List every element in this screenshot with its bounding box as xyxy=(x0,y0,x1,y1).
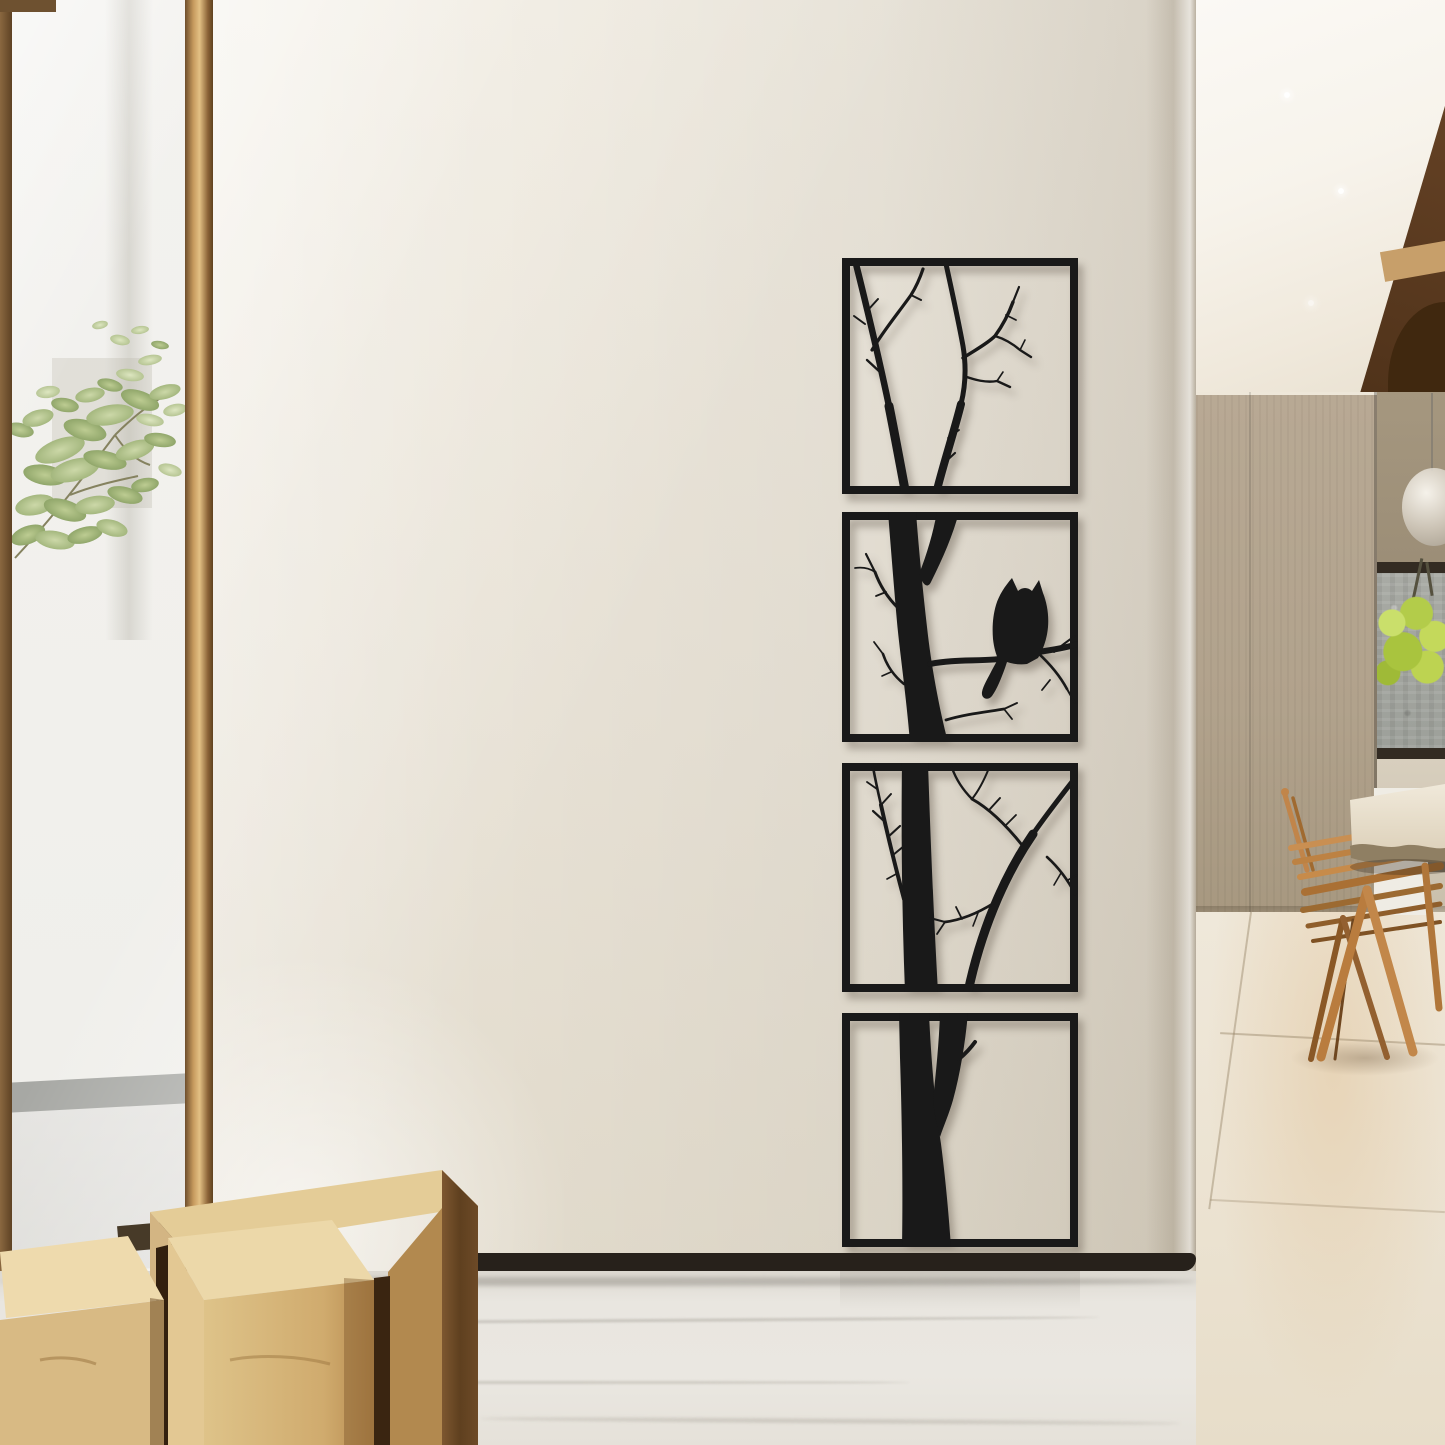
tree-trunk-branch-art xyxy=(867,763,1077,992)
tree-lower-trunk-art xyxy=(899,1013,975,1247)
interior-photo-scene xyxy=(0,0,1445,1445)
window-frame-top xyxy=(0,0,56,12)
pendant-cord xyxy=(1431,393,1433,471)
art-panel-3 xyxy=(842,763,1078,992)
window-post xyxy=(185,0,213,1271)
stool-shaded-edge xyxy=(344,1278,374,1445)
stool-front-face xyxy=(0,1300,164,1445)
corridor-upper xyxy=(1196,0,1445,392)
art-panel-2 xyxy=(842,512,1078,742)
stool-shaded-edge xyxy=(150,1298,164,1445)
wood-panel-seam xyxy=(1249,392,1251,916)
owl-silhouette xyxy=(982,578,1048,699)
ceiling-light-dot xyxy=(1338,188,1344,194)
wall-corner-shade xyxy=(1146,0,1196,1271)
table-top xyxy=(1350,784,1445,854)
bench-front-face xyxy=(388,1208,442,1445)
ceiling-light-dot xyxy=(1308,300,1314,306)
flower-bouquet xyxy=(1377,596,1445,692)
niche-slot-lower xyxy=(1377,748,1445,759)
panel-floor-reflection xyxy=(840,1271,1080,1311)
baseboard xyxy=(440,1253,1196,1271)
tree-branches-art xyxy=(854,264,1031,490)
stool-gap-shadow xyxy=(374,1276,390,1445)
wood-block-stools xyxy=(0,1160,490,1445)
art-panel-1 xyxy=(842,258,1078,494)
niche-slot-upper xyxy=(1377,562,1445,573)
art-panel-4 xyxy=(842,1013,1078,1247)
floor-vein xyxy=(480,1417,1180,1426)
dining-chairs-and-table xyxy=(1255,770,1445,1070)
ceiling-light-dot xyxy=(1284,92,1290,98)
bench-right-side xyxy=(442,1170,478,1445)
glass-sheen xyxy=(12,0,185,1271)
table-under-shadow xyxy=(1350,859,1445,875)
table-slab xyxy=(1350,784,1445,875)
